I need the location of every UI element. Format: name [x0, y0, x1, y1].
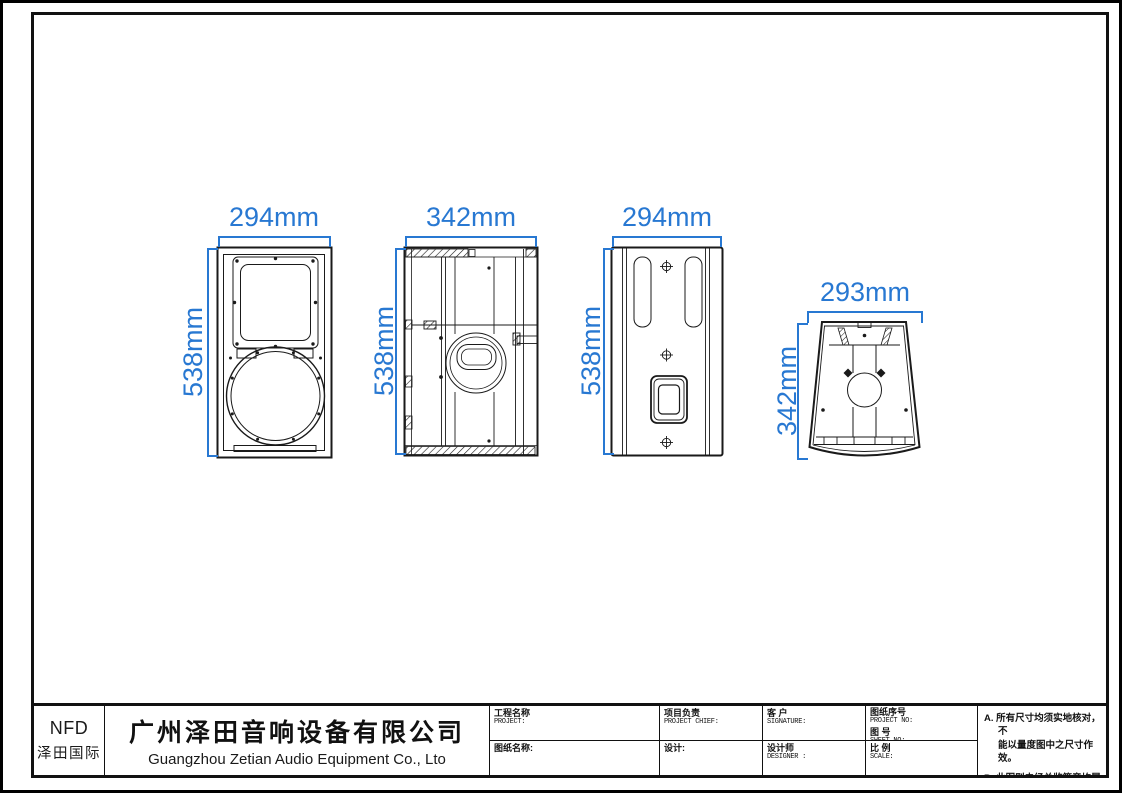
client-signature-field: 客 户 SIGNATURE:: [762, 706, 865, 741]
design-label: 设计:: [664, 743, 762, 753]
front-width-dimension: 294mm: [212, 202, 336, 233]
note-b: B. 此图则未经总监签章均属无效。 另作其它用途。: [984, 772, 1103, 775]
logo-brand-text: NFD: [50, 718, 89, 739]
horn-grille: [233, 257, 318, 348]
front-height-dimension: 538mm: [178, 302, 206, 402]
woofer: [227, 347, 325, 445]
front-width-dimension-line: [218, 236, 331, 247]
handle-cutout: [446, 333, 506, 393]
top-view-drawing: [808, 318, 928, 466]
project-no-label-cn: 图纸序号: [870, 707, 977, 717]
project-field: 工程名称 PROJECT:: [489, 706, 659, 741]
front-latch-slots: [237, 349, 313, 358]
side-width-dimension-line: [405, 236, 537, 247]
company-name-en: Guangzhou Zetian Audio Equipment Co., Lt…: [148, 751, 446, 768]
back-width-dimension: 294mm: [607, 202, 727, 233]
side-width-dimension: 342mm: [411, 202, 531, 233]
company-logo: NFD 泽田国际: [34, 706, 104, 775]
title-block: NFD 泽田国际 广州泽田音响设备有限公司 Guangzhou Zetian A…: [31, 703, 1109, 778]
project-chief-label-cn: 项目负责: [664, 708, 762, 718]
design-field: 设计:: [659, 741, 762, 775]
back-edge-lines: [623, 249, 710, 456]
designer-label-cn: 设计师: [767, 743, 865, 753]
top-height-dimension: 342mm: [772, 341, 800, 441]
back-width-dimension-line: [612, 236, 722, 247]
front-view-drawing: [216, 246, 334, 460]
project-label-cn: 工程名称: [494, 708, 659, 718]
company-name-cn: 广州泽田音响设备有限公司: [129, 713, 465, 749]
woofer-screw-holes: [229, 351, 322, 440]
back-view-drawing: [610, 246, 726, 458]
project-chief-field: 项目负责 PROJECT CHIEF:: [659, 706, 762, 741]
project-no-sheet-no-field: 图纸序号 PROJECT NO: 图 号 SHEET NO:: [865, 706, 977, 741]
drawing-sheet: 294mm 538mm 342mm 538mm 294mm 538mm 293m…: [0, 0, 1122, 793]
top-width-dimension-line: [807, 311, 923, 323]
project-label-en: PROJECT:: [494, 718, 659, 726]
scale-label-cn: 比 例: [870, 743, 977, 753]
back-crosshair-screws: [660, 260, 673, 449]
project-no-label-en: PROJECT NO:: [870, 717, 977, 725]
top-front-baffle-detail: [814, 437, 915, 445]
designer-label-en: DESIGNER :: [767, 753, 865, 761]
company-name-block: 广州泽田音响设备有限公司 Guangzhou Zetian Audio Equi…: [104, 706, 489, 775]
client-label-cn: 客 户: [767, 708, 865, 718]
drawing-name-label: 图纸名称:: [494, 743, 659, 753]
front-height-dimension-line: [207, 248, 218, 457]
top-cabinet-outline: [810, 322, 920, 456]
project-chief-label-en: PROJECT CHIEF:: [664, 718, 762, 726]
sheet-no-label-cn: 图 号: [870, 727, 977, 737]
side-height-dimension: 538mm: [369, 301, 397, 401]
top-width-dimension: 293mm: [805, 277, 925, 308]
back-height-dimension: 538mm: [576, 301, 604, 401]
mounting-slots: [634, 257, 702, 327]
logo-subtitle-text: 泽田国际: [37, 742, 101, 763]
top-handle-recess: [829, 322, 900, 437]
io-connector-plate: [651, 376, 687, 423]
side-cabinet-outline: [405, 248, 538, 456]
drawing-name-field: 图纸名称:: [489, 741, 659, 775]
side-view-drawing: [403, 246, 543, 458]
drawing-notes: A. 所有尺寸均须实地核对，不 能以量度图中之尺寸作效。 B. 此图则未经总监签…: [977, 706, 1106, 775]
scale-label-en: SCALE:: [870, 753, 977, 761]
note-a: A. 所有尺寸均须实地核对，不 能以量度图中之尺寸作效。: [984, 712, 1103, 765]
horn-screw-holes: [233, 257, 317, 348]
designer-field: 设计师 DESIGNER :: [762, 741, 865, 775]
side-section-hatching: [406, 249, 538, 455]
scale-field: 比 例 SCALE:: [865, 741, 977, 775]
side-panel-lines: [412, 249, 537, 455]
client-label-en: SIGNATURE:: [767, 718, 865, 726]
